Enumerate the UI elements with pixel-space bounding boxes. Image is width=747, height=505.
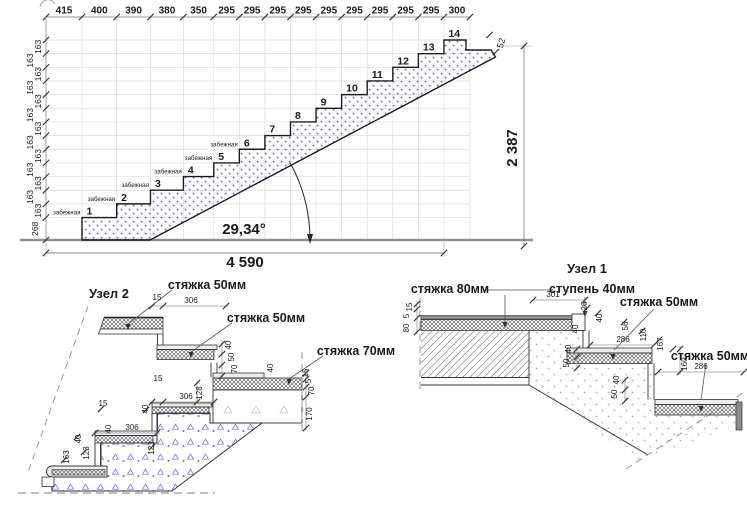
node1-dim-label: 80 xyxy=(402,323,411,332)
node2-dim-label: 170 xyxy=(305,407,314,421)
node1-dim-label: 50 xyxy=(610,389,619,398)
node1-step-label: ступень 40мм xyxy=(549,282,635,296)
riser-dim-label: 163 xyxy=(25,80,35,94)
cut-line xyxy=(28,306,88,472)
first-riser-dim-label: 268 xyxy=(30,221,40,235)
node1-screed-label-3: стяжка 50мм xyxy=(671,349,747,363)
node1-dim-label: 40 xyxy=(612,375,621,384)
tread-screed xyxy=(152,407,209,414)
top-dim-label: 295 xyxy=(372,6,389,17)
step-number: 11 xyxy=(372,69,383,81)
dim-tick xyxy=(486,32,492,38)
stair-section-view: 4154003903803502952952952952952952952952… xyxy=(20,0,533,257)
top-dim-label: 295 xyxy=(295,6,312,17)
node2-dim-label: 70 xyxy=(307,386,316,395)
node1-dim-label: 40 xyxy=(595,313,604,322)
riser-dim-label: 163 xyxy=(25,190,35,204)
riser-dim-label: 163 xyxy=(33,149,43,163)
step-number: 14 xyxy=(448,28,460,40)
angle-arc xyxy=(290,162,310,240)
riser-dim-label: 163 xyxy=(33,121,43,135)
edge-cap xyxy=(736,402,742,430)
step-number: 8 xyxy=(295,110,301,122)
node1-dim-label: 40 xyxy=(564,344,573,353)
step-number: 1 xyxy=(86,206,92,218)
tread-screed xyxy=(52,470,105,476)
landing-slab xyxy=(213,390,302,423)
step-number: 12 xyxy=(397,55,409,67)
step-number: 9 xyxy=(321,96,327,108)
slope-angle-label: 29,34° xyxy=(222,221,266,238)
top-dim-label: 295 xyxy=(346,6,363,17)
node2-dim-label: 15 xyxy=(153,293,162,302)
node2-dim-label: 40 xyxy=(266,363,275,372)
floor-finish xyxy=(421,316,584,320)
stair-drawing: 4154003903803502952952952952952952952952… xyxy=(0,0,747,505)
riser-dim-label: 163 xyxy=(25,162,35,176)
landing-screed xyxy=(421,320,584,331)
step-number: 3 xyxy=(155,178,161,190)
riser-dim-label: 163 xyxy=(25,108,35,122)
node2-dim-label: 306 xyxy=(184,296,198,305)
riser-dim-label: 163 xyxy=(25,53,35,67)
node1-dim-label: 50 xyxy=(562,358,571,367)
node2-dim-label: 40 xyxy=(104,424,113,433)
tread-screed xyxy=(95,436,153,444)
step-number: 6 xyxy=(244,137,250,149)
top-dim-label: 390 xyxy=(125,6,142,17)
winder-label: забежная xyxy=(88,196,115,203)
step-number: 2 xyxy=(121,192,127,204)
top-dim-label: 295 xyxy=(423,6,440,17)
top-dim-label: 295 xyxy=(218,6,235,17)
riser-dim-label: 163 xyxy=(33,39,43,53)
winder-label: забежная xyxy=(154,169,181,176)
winder-label: забежная xyxy=(185,155,212,162)
stair-blueprint-page: 4154003903803502952952952952952952952952… xyxy=(0,0,747,505)
top-dim-label: 350 xyxy=(190,6,207,17)
node2-dim-label: 15 xyxy=(301,368,310,377)
node2-dim-label: 15 xyxy=(99,399,108,408)
node1-dim-label: 5 xyxy=(402,313,411,318)
tread-screed xyxy=(655,405,738,416)
nose-foot xyxy=(42,477,54,487)
tread-plate xyxy=(157,345,217,350)
corner-mark xyxy=(40,0,55,7)
node1-screed-label-1: стяжка 80мм xyxy=(411,282,489,296)
landing-edge-dimension: 52 xyxy=(495,37,507,50)
node1-dim-label: 26 xyxy=(580,301,589,310)
riser-dim-label: 163 xyxy=(33,94,43,108)
node2-screed-label-3: стяжка 70мм xyxy=(317,344,395,358)
node2-dim-label: 40 xyxy=(224,340,233,349)
top-dim-label: 295 xyxy=(321,6,338,17)
top-dim-label: 300 xyxy=(449,6,466,17)
node2-dim-label: 123 xyxy=(82,446,91,460)
tread-plate xyxy=(655,400,738,405)
winder-label: забежная xyxy=(53,210,80,217)
node1-dim-label: 167 xyxy=(656,337,665,351)
riser xyxy=(95,443,101,466)
node1-dim-label: 286 xyxy=(694,362,708,371)
total-run-dimension: 4 590 xyxy=(226,254,264,271)
total-rise-dimension: 2 387 xyxy=(504,129,521,167)
node2-dim-label: 123 xyxy=(147,441,156,455)
riser-dim-label: 163 xyxy=(33,67,43,81)
node2-dim-label: 70 xyxy=(230,364,239,373)
tread-screed xyxy=(157,350,214,360)
node2-dim-label: 306 xyxy=(179,392,193,401)
top-dim-label: 295 xyxy=(244,6,261,17)
riser-dim-label: 163 xyxy=(33,203,43,217)
existing-slab xyxy=(421,331,529,378)
top-dim-label: 380 xyxy=(159,6,176,17)
winder-label: забежная xyxy=(210,141,237,148)
node1-dim-label: 40 xyxy=(571,324,580,333)
top-dim-label: 400 xyxy=(91,6,108,17)
node1-dim-label: 110 xyxy=(639,328,648,341)
node1-dim-label: 286 xyxy=(616,335,630,344)
tread-plate xyxy=(567,348,652,353)
node1-screed-label-2: стяжка 50мм xyxy=(620,295,698,309)
tread-screed xyxy=(101,318,164,330)
node2-dim-label: 163 xyxy=(62,450,71,464)
node2-dim-label: 5 xyxy=(304,378,313,383)
tread-plate xyxy=(99,329,164,334)
step-number: 5 xyxy=(218,151,224,163)
step-number: 13 xyxy=(423,42,435,54)
winder-label: забежная xyxy=(121,182,148,189)
riser-dim-label: 163 xyxy=(33,176,43,190)
node2-dim-label: 40 xyxy=(74,434,83,443)
top-dim-label: 295 xyxy=(397,6,414,17)
node2-dim-label: 128 xyxy=(195,386,204,400)
top-dim-label: 295 xyxy=(269,6,286,17)
detail-node-1: 155803012640405611016728640501602864050 xyxy=(402,290,747,469)
node1-dim-label: 56 xyxy=(621,321,630,330)
riser-dim-label: 163 xyxy=(25,135,35,149)
riser xyxy=(158,334,164,345)
node2-screed-label-1: стяжка 50мм xyxy=(168,278,246,292)
node2-dim-label: 306 xyxy=(125,423,139,432)
node2-title: Узел 2 xyxy=(89,286,129,301)
top-dim-label: 415 xyxy=(56,6,73,17)
stair-profile xyxy=(82,40,496,240)
riser xyxy=(583,331,589,349)
node2-dim-label: 15 xyxy=(154,374,163,383)
node1-dim-label: 15 xyxy=(405,302,414,311)
step-number: 4 xyxy=(188,165,194,177)
node1-title: Узел 1 xyxy=(567,261,607,276)
step-number: 10 xyxy=(346,83,358,95)
node2-dim-label: 40 xyxy=(141,404,150,413)
node2-dim-label: 50 xyxy=(227,352,236,361)
node2-screed-label-2: стяжка 50мм xyxy=(227,311,305,325)
step-number: 7 xyxy=(269,124,275,136)
